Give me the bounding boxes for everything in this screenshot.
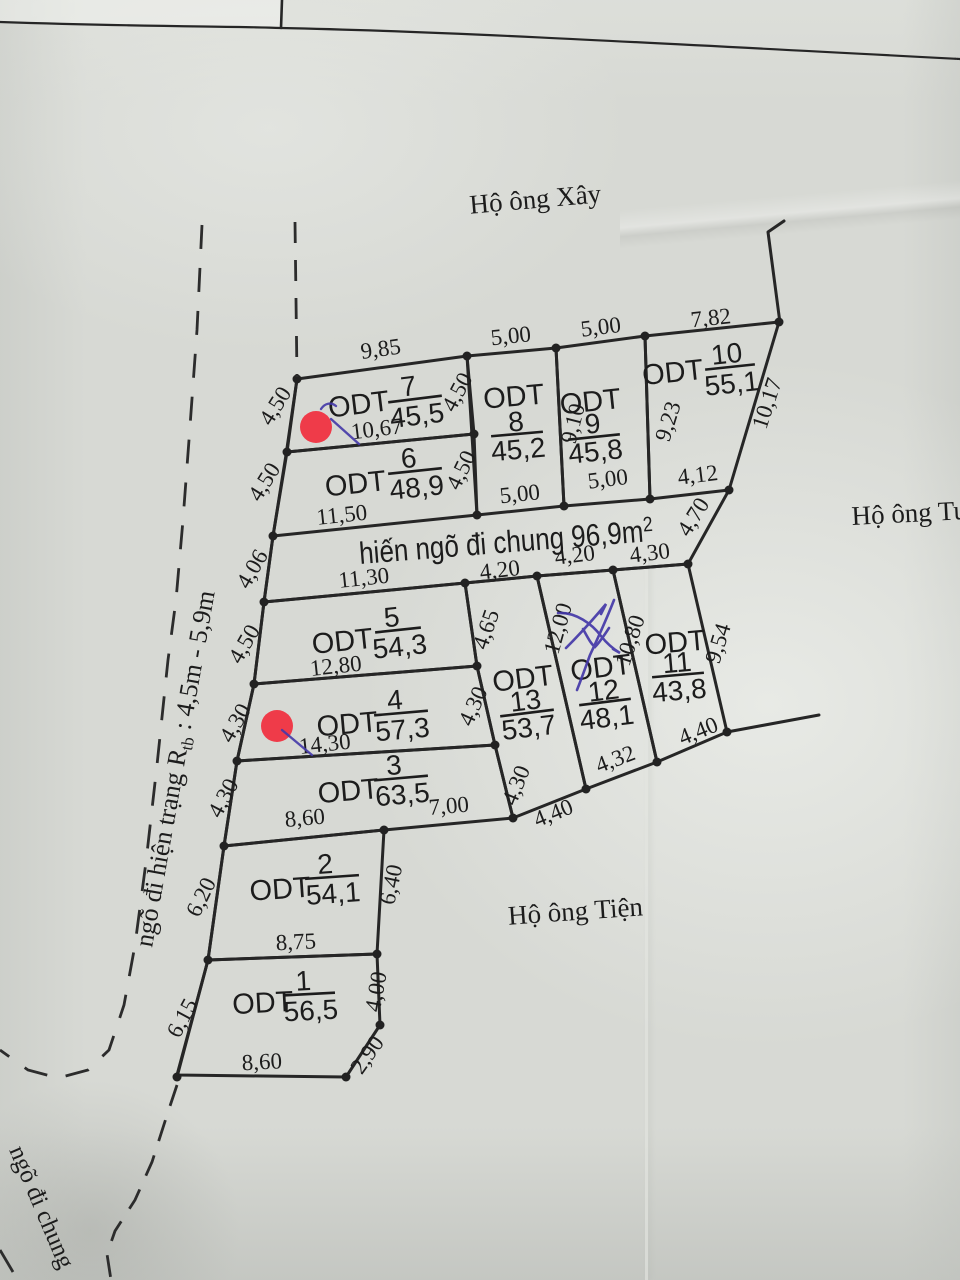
svg-text:ODT: ODT [310,623,375,661]
svg-text:Hộ ông Tiện: Hộ ông Tiện [507,891,644,930]
svg-text:45,5: 45,5 [388,397,446,434]
svg-text:2: 2 [316,848,334,880]
svg-text:1: 1 [295,965,312,997]
svg-text:8,60: 8,60 [241,1048,283,1075]
svg-text:ODT: ODT [323,465,388,503]
svg-text:3: 3 [385,749,403,781]
svg-text:4,40: 4,40 [530,794,577,832]
svg-text:4,00: 4,00 [360,970,392,1014]
svg-text:6: 6 [399,442,418,474]
svg-text:55,1: 55,1 [703,365,760,402]
svg-text:45,2: 45,2 [490,432,547,468]
svg-text:43,8: 43,8 [651,673,708,709]
svg-text:4,70: 4,70 [672,493,715,540]
svg-text:48,9: 48,9 [388,469,445,506]
svg-text:ODT: ODT [641,354,706,392]
svg-text:2,90: 2,90 [345,1031,389,1078]
svg-text:9,23: 9,23 [650,398,686,444]
svg-text:9,85: 9,85 [359,334,402,364]
svg-text:53,7: 53,7 [500,709,558,746]
svg-text:5,00: 5,00 [498,479,541,508]
svg-text:48,1: 48,1 [578,699,636,736]
svg-text:63,5: 63,5 [374,777,431,813]
svg-text:54,1: 54,1 [305,876,362,911]
svg-text:ODT: ODT [315,706,379,743]
svg-text:8,75: 8,75 [275,928,317,955]
svg-text:57,3: 57,3 [374,712,431,748]
svg-text:4,12: 4,12 [676,460,719,490]
svg-text:7: 7 [399,370,418,403]
svg-text:6,40: 6,40 [374,862,407,907]
svg-text:4,65: 4,65 [468,606,505,652]
svg-text:56,5: 56,5 [283,994,339,1028]
svg-text:54,3: 54,3 [371,628,428,665]
svg-text:4,40: 4,40 [675,712,722,750]
svg-text:ODT: ODT [316,773,380,810]
svg-text:Hộ ông Tu: Hộ ông Tu [851,495,960,531]
svg-text:7,00: 7,00 [428,792,470,820]
svg-text:11,50: 11,50 [315,500,368,530]
svg-text:5,00: 5,00 [586,464,629,494]
svg-text:5,00: 5,00 [489,321,532,350]
svg-text:4,30: 4,30 [203,774,244,821]
svg-text:ngõ đi chung: ngõ đi chung [3,1142,79,1273]
svg-text:ODT: ODT [248,872,312,908]
svg-text:4,30: 4,30 [497,762,535,809]
svg-text:45,8: 45,8 [567,433,624,470]
svg-text:4: 4 [386,684,404,716]
svg-text:Hộ ông Xây: Hộ ông Xây [468,178,603,219]
svg-text:7,82: 7,82 [689,303,732,332]
svg-text:5,00: 5,00 [579,312,622,342]
svg-text:5: 5 [382,601,401,633]
